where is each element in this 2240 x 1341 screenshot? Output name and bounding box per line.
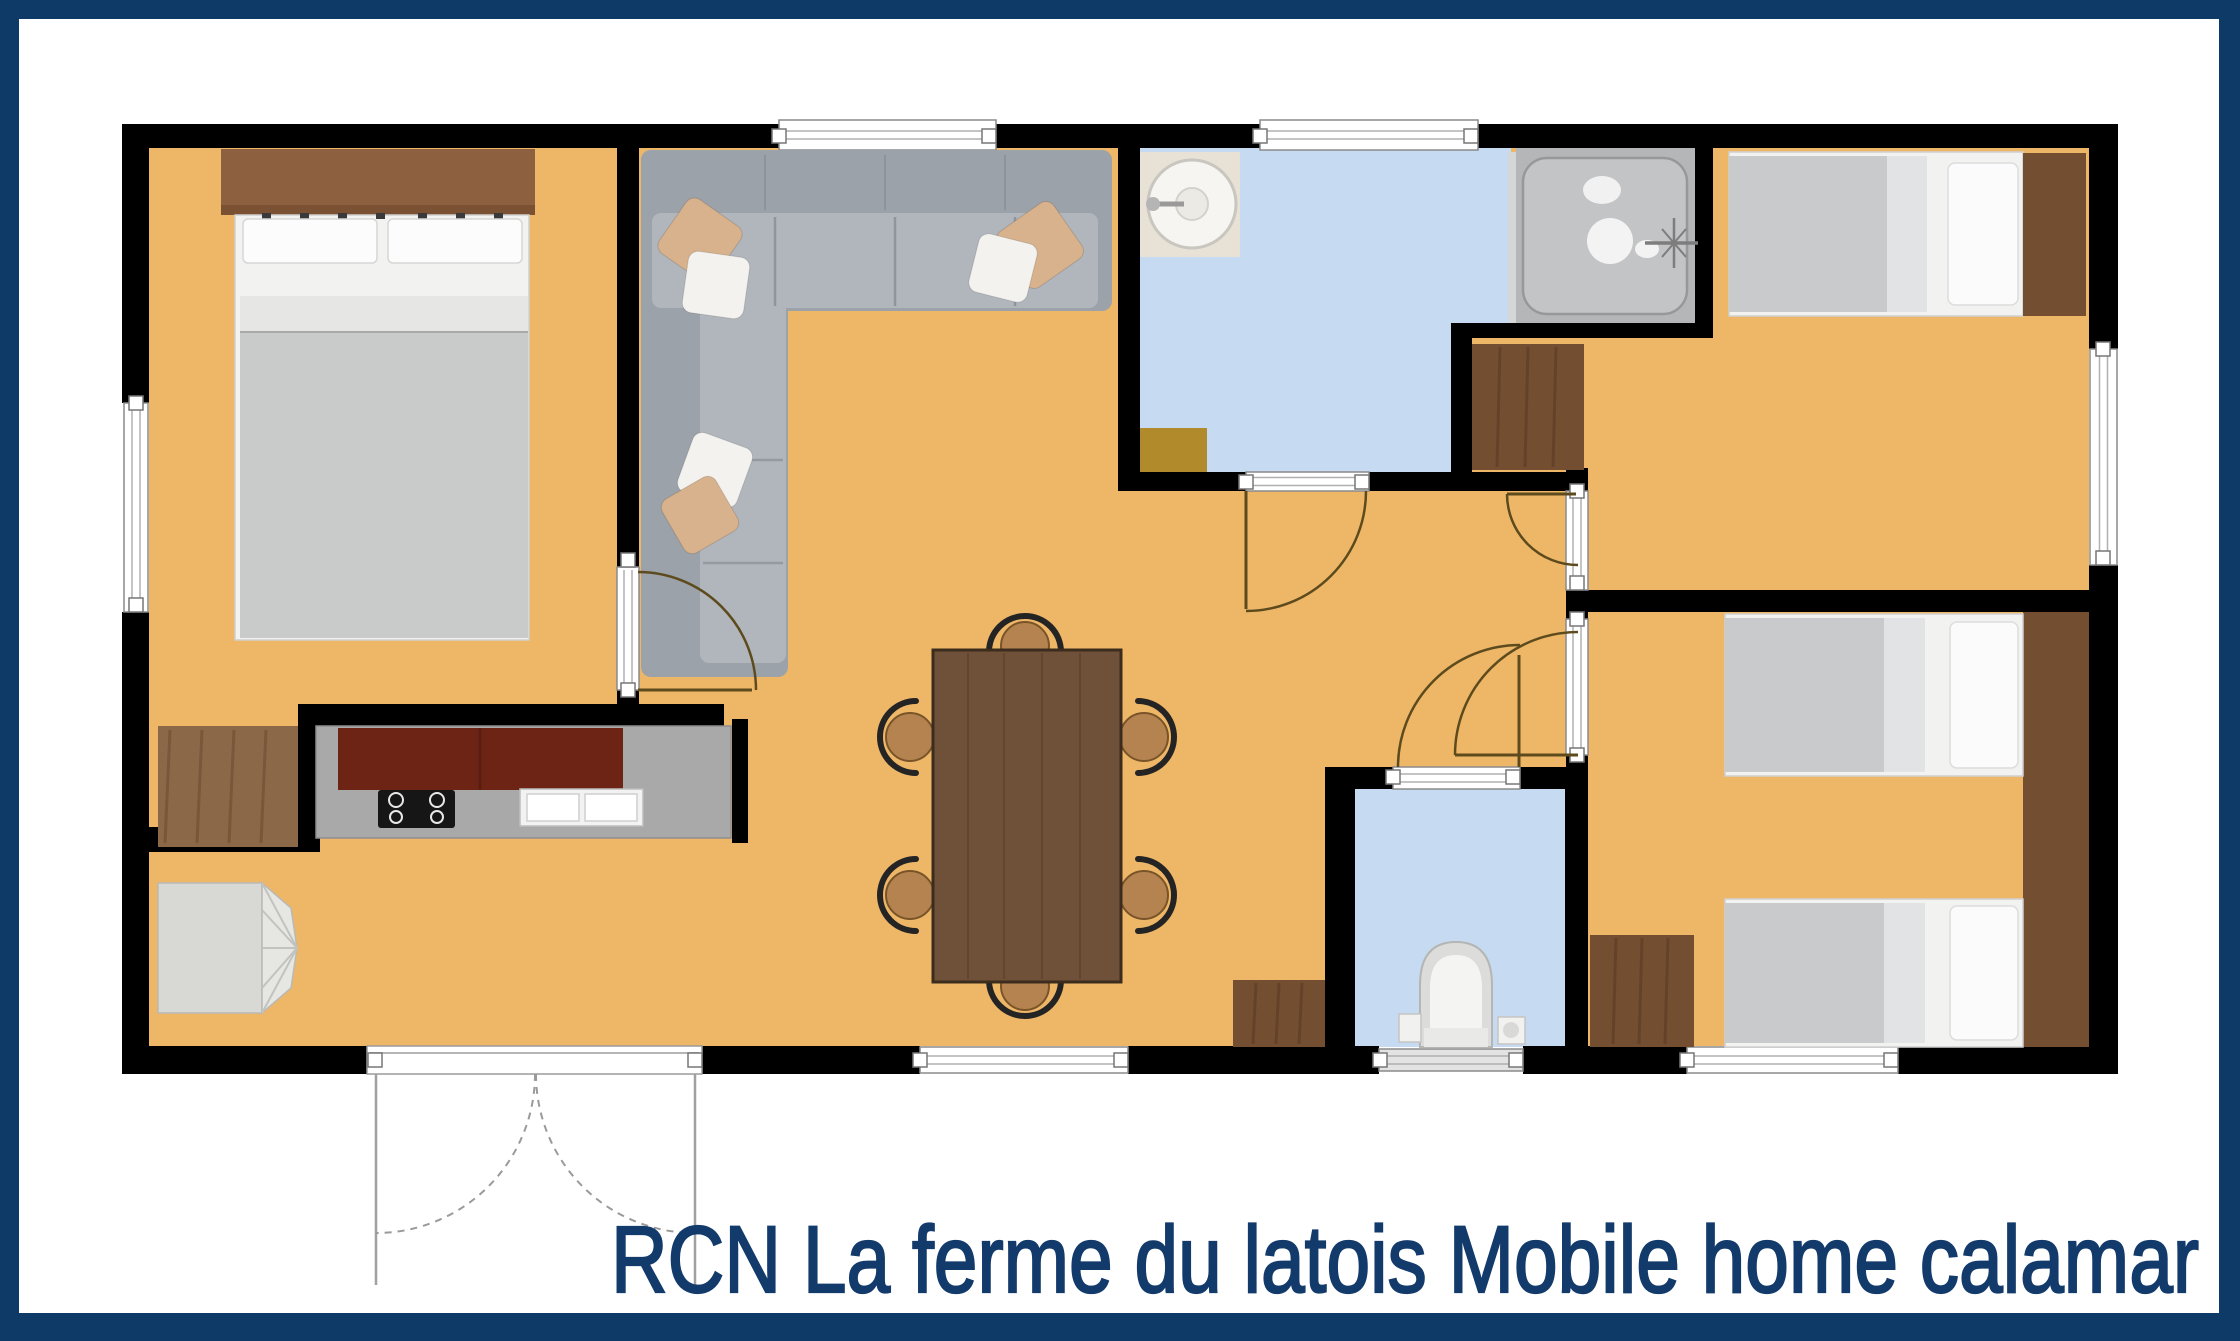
svg-text:RCN La ferme du latois Mobile: RCN La ferme du latois Mobile home calam… (611, 1207, 2199, 1313)
